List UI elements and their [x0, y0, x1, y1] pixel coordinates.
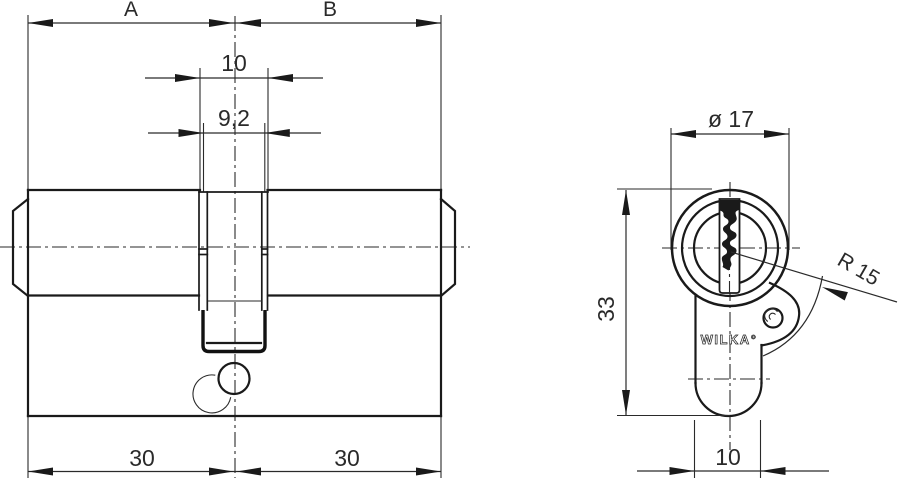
cam-lobe — [203, 310, 265, 352]
dim-label-cam-radius: R 15 — [834, 248, 884, 290]
end-view: ø 17 WILK — [593, 106, 897, 478]
dim-label-cam-body-width: 9,2 — [218, 105, 250, 131]
dimension-body-width: 10 — [637, 420, 829, 478]
dim-label-cam-width: 10 — [221, 50, 247, 76]
fixing-screw-hole — [193, 363, 250, 413]
brand-logo: WILKA° — [701, 332, 758, 347]
housing-outline — [13, 190, 455, 416]
profile-body — [696, 295, 762, 416]
side-view: A B 10 9,2 — [0, 0, 470, 478]
dim-label-length-left: 30 — [129, 445, 155, 471]
dim-label-b: B — [323, 0, 337, 21]
dim-label-diameter: ø 17 — [708, 106, 754, 132]
cylinder-lock-drawing: A B 10 9,2 — [0, 0, 901, 480]
dim-label-length-right: 30 — [334, 445, 360, 471]
dim-label-body-width: 10 — [715, 444, 741, 470]
dim-label-height: 33 — [593, 296, 619, 322]
dim-label-a: A — [124, 0, 138, 21]
cam — [199, 192, 268, 352]
technical-drawing-canvas: A B 10 9,2 — [0, 0, 901, 480]
keyway — [720, 199, 740, 293]
